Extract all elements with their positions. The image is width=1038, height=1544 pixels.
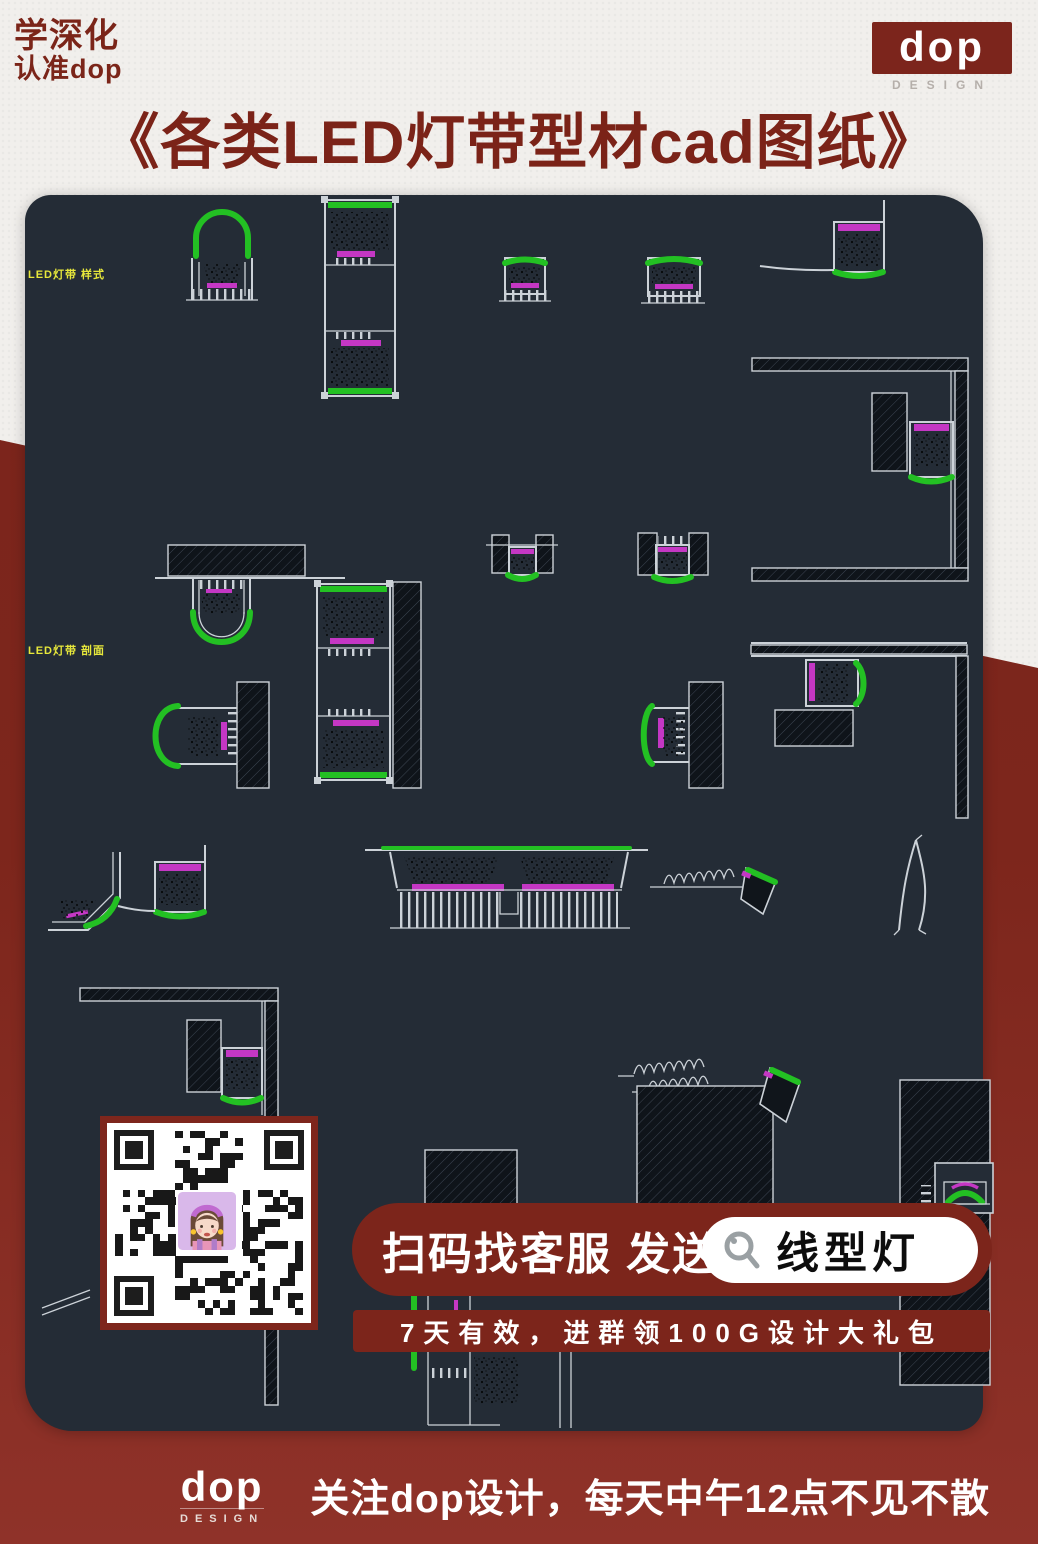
footer-dop-logo-text: dop [180, 1467, 264, 1507]
brand-badge-line2: 认准dop [14, 55, 122, 84]
qr-inner [112, 1128, 306, 1318]
page-title: 《各类LED灯带型材cad图纸》 [0, 94, 1038, 181]
qr-finder-icon [114, 1276, 154, 1316]
qr-code[interactable] [100, 1116, 318, 1330]
footer: dop DESIGN 关注dop设计，每天中午12点不见不散 [0, 1448, 1038, 1544]
footer-dop-logo: dop DESIGN [180, 1467, 264, 1526]
note-text: 7天有效，进群领100G设计大礼包 [400, 1313, 943, 1350]
magnifier-icon [722, 1230, 762, 1270]
qr-finder-icon [264, 1130, 304, 1170]
qr-avatar [176, 1190, 242, 1256]
brand-badge: 学深化 认准dop [14, 18, 122, 84]
footer-message: 关注dop设计，每天中午12点不见不散 [310, 1468, 990, 1524]
scan-banner-text: 扫码找客服 发送 [382, 1218, 718, 1282]
poster: 学深化 认准dop dop DESIGN 《各类LED灯带型材cad图纸》 [0, 0, 1038, 1544]
footer-dop-logo-subtext: DESIGN [180, 1508, 264, 1525]
search-pill[interactable]: 线型灯 [702, 1217, 978, 1283]
scan-banner: 扫码找客服 发送 线型灯 [352, 1203, 992, 1296]
cad-label-style: LED灯带 样式 [28, 266, 105, 282]
avatar-girl-icon [178, 1192, 236, 1250]
note-banner: 7天有效，进群领100G设计大礼包 [353, 1310, 990, 1352]
cad-label-section: LED灯带 剖面 [28, 642, 105, 658]
qr-finder-icon [114, 1130, 154, 1170]
search-keyword: 线型灯 [776, 1219, 920, 1281]
dop-logo: dop DESIGN [872, 22, 1012, 92]
dop-logo-subtext: DESIGN [872, 78, 1012, 92]
brand-badge-line1: 学深化 [14, 18, 122, 55]
dop-logo-text: dop [872, 22, 1012, 74]
